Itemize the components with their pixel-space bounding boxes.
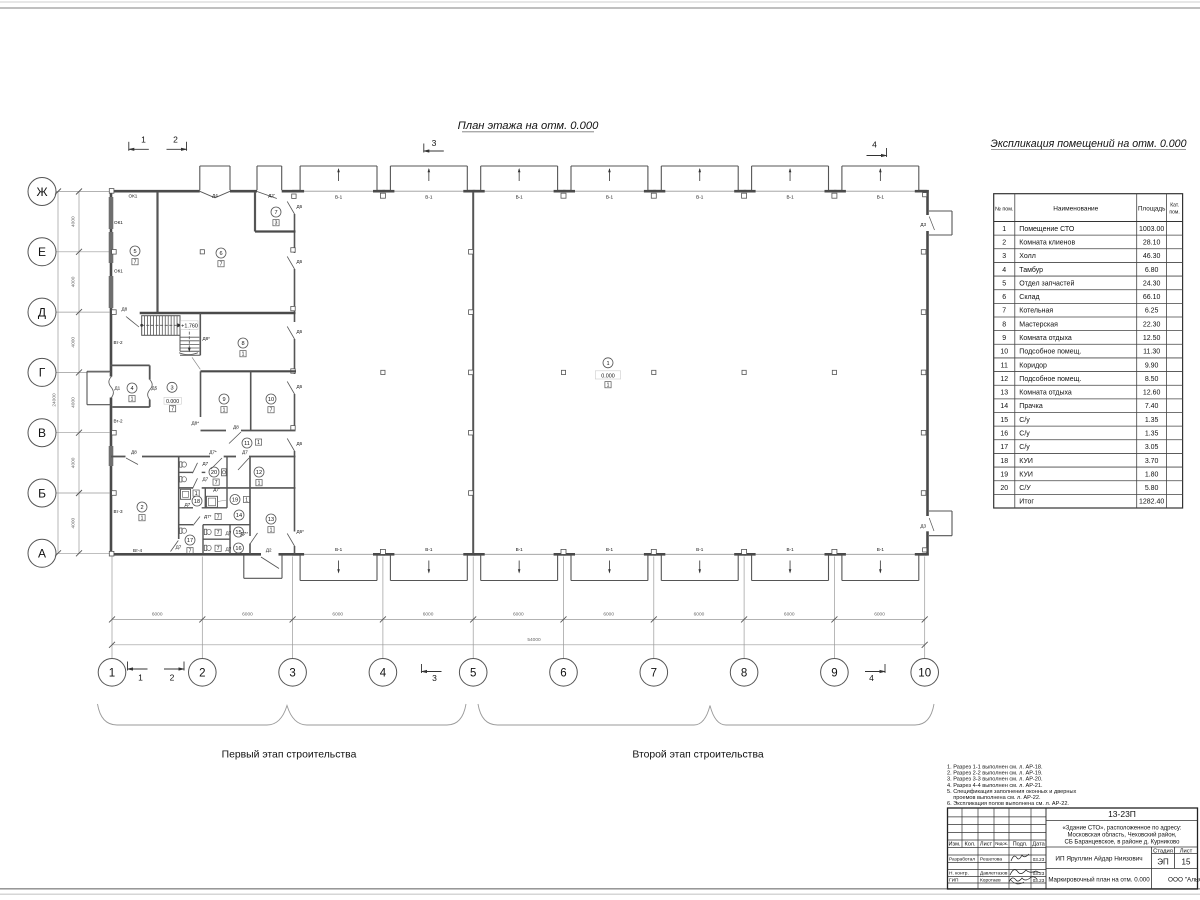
svg-text:6000: 6000: [603, 611, 614, 617]
svg-text:3: 3: [170, 385, 173, 391]
svg-text:Д: Д: [38, 305, 46, 319]
svg-text:24.30: 24.30: [1143, 280, 1161, 287]
svg-text:Котельная: Котельная: [1019, 308, 1053, 315]
svg-text:10: 10: [1000, 349, 1008, 356]
svg-text:С/у: С/у: [1019, 430, 1030, 437]
svg-text:2. Разрез 2-2 выполнен см. л.: 2. Разрез 2-2 выполнен см. л. АР-19.: [947, 771, 1043, 777]
svg-text:Д8*: Д8*: [203, 336, 211, 341]
svg-text:3: 3: [1002, 253, 1006, 260]
svg-text:В-1: В-1: [786, 195, 794, 200]
svg-text:7: 7: [274, 210, 277, 216]
svg-text:В-1: В-1: [606, 195, 614, 200]
svg-text:9.90: 9.90: [1145, 362, 1159, 369]
svg-text:В-1: В-1: [425, 195, 433, 200]
svg-text:1. Разрез 1-1 выполнен см. л.: 1. Разрез 1-1 выполнен см. л. АР-18.: [947, 765, 1043, 771]
svg-text:Экспликация помещений на отм.: Экспликация помещений на отм. 0.000: [991, 138, 1187, 150]
svg-text:Д6: Д6: [297, 441, 303, 446]
svg-text:7: 7: [171, 407, 174, 413]
svg-text:5: 5: [1002, 280, 1006, 287]
svg-text:3. Разрез 3-3 выполнен см. л.: 3. Разрез 3-3 выполнен см. л. АР-20.: [947, 777, 1043, 783]
svg-text:ЭП: ЭП: [1157, 858, 1169, 867]
svg-text:ООО "Альянс: ООО "Альянс: [1168, 877, 1200, 884]
svg-text:Д7*: Д7*: [209, 450, 217, 455]
svg-text:12.60: 12.60: [1143, 390, 1161, 397]
svg-text:15: 15: [1182, 858, 1191, 867]
svg-text:1: 1: [257, 440, 260, 446]
svg-text:6: 6: [560, 668, 566, 680]
svg-text:Подсобное помещ.: Подсобное помещ.: [1019, 348, 1081, 356]
svg-text:Московская область, Чеховский: Московская область, Чеховский район,: [1067, 832, 1176, 839]
svg-text:66.10: 66.10: [1143, 294, 1161, 301]
svg-text:7: 7: [189, 549, 192, 555]
svg-text:7: 7: [217, 514, 220, 520]
svg-text:Д8: Д8: [131, 450, 137, 455]
svg-text:Д7: Д7: [203, 461, 209, 466]
svg-text:20: 20: [211, 470, 217, 476]
svg-text:В-1: В-1: [516, 195, 524, 200]
svg-text:7: 7: [220, 262, 223, 268]
svg-text:1: 1: [607, 383, 610, 389]
svg-text:№док.: №док.: [995, 841, 1008, 846]
svg-text:ОК1: ОК1: [129, 194, 138, 199]
svg-text:9: 9: [831, 668, 837, 680]
svg-text:6000: 6000: [423, 611, 434, 617]
svg-text:Д6: Д6: [297, 384, 303, 389]
svg-text:7: 7: [215, 480, 218, 486]
svg-text:ГИП: ГИП: [949, 878, 959, 884]
svg-text:6000: 6000: [694, 611, 705, 617]
svg-text:№ пом.: № пом.: [995, 207, 1013, 213]
svg-text:7: 7: [217, 530, 220, 536]
svg-text:4: 4: [1002, 267, 1006, 274]
svg-text:Д6: Д6: [297, 259, 303, 264]
svg-text:В-1: В-1: [425, 547, 433, 552]
svg-text:18: 18: [194, 499, 200, 505]
svg-text:Изм.: Изм.: [949, 841, 961, 847]
svg-text:1: 1: [223, 408, 226, 414]
svg-text:6000: 6000: [874, 611, 885, 617]
svg-text:Е: Е: [38, 245, 46, 259]
svg-text:ОК1: ОК1: [114, 269, 123, 274]
svg-text:1: 1: [131, 397, 134, 403]
svg-text:Н. контр.: Н. контр.: [949, 871, 969, 877]
svg-text:Д7*: Д7*: [204, 514, 212, 519]
svg-text:Вт-3: Вт-3: [114, 509, 124, 514]
svg-text:1: 1: [109, 668, 115, 680]
svg-text:1: 1: [245, 497, 248, 503]
svg-text:С/У: С/У: [1019, 485, 1031, 492]
svg-text:Коротаев: Коротаев: [980, 878, 1001, 884]
svg-text:В-1: В-1: [516, 547, 524, 552]
svg-text:03.23: 03.23: [1033, 871, 1045, 876]
svg-text:Д7: Д7: [203, 476, 209, 481]
svg-text:7: 7: [134, 260, 137, 266]
svg-text:Д7: Д7: [242, 450, 248, 455]
svg-text:Маркировочный план на отм. 0.0: Маркировочный план на отм. 0.000: [1048, 877, 1150, 884]
svg-text:4: 4: [380, 668, 387, 680]
svg-text:7: 7: [270, 408, 273, 414]
svg-text:6.80: 6.80: [1145, 267, 1159, 274]
svg-text:12: 12: [256, 470, 262, 476]
svg-text:Второй этап строительства: Второй этап строительства: [632, 750, 763, 761]
svg-text:В-1: В-1: [606, 547, 614, 552]
svg-text:Д6: Д6: [297, 329, 303, 334]
svg-text:Д5: Д5: [152, 386, 158, 391]
svg-text:1.80: 1.80: [1145, 471, 1159, 478]
svg-text:3: 3: [432, 673, 437, 683]
svg-text:3.70: 3.70: [1145, 458, 1159, 465]
svg-text:1: 1: [1002, 226, 1006, 233]
svg-text:В-1: В-1: [786, 547, 794, 552]
svg-text:КУИ: КУИ: [1019, 471, 1033, 478]
svg-text:4. Разрез 4-4 выполнен см. л.: 4. Разрез 4-4 выполнен см. л. АР-21.: [947, 783, 1043, 789]
svg-text:Отдел запчастей: Отдел запчастей: [1019, 279, 1074, 287]
svg-text:4: 4: [872, 140, 877, 150]
svg-text:22.30: 22.30: [1143, 321, 1161, 328]
svg-text:18: 18: [1000, 458, 1008, 465]
svg-text:4: 4: [869, 673, 874, 683]
svg-text:7: 7: [1002, 308, 1006, 315]
svg-text:6: 6: [1002, 294, 1006, 301]
svg-text:17: 17: [187, 538, 193, 544]
svg-text:14: 14: [236, 513, 242, 519]
svg-text:Итог: Итог: [1019, 499, 1034, 506]
svg-text:7: 7: [651, 668, 657, 680]
svg-text:Мастерская: Мастерская: [1019, 321, 1058, 328]
svg-text:С/у: С/у: [1019, 444, 1030, 451]
svg-text:15: 15: [1000, 417, 1008, 424]
svg-text:2: 2: [173, 135, 178, 145]
svg-text:6000: 6000: [784, 611, 795, 617]
svg-text:Холл: Холл: [1019, 253, 1036, 260]
svg-text:Вт-4: Вт-4: [133, 548, 143, 553]
svg-text:Первый этап строительства: Первый этап строительства: [222, 750, 357, 761]
svg-text:10: 10: [268, 397, 274, 403]
svg-text:ОК1: ОК1: [114, 220, 123, 225]
svg-text:СБ Баранцевское, в районе д. К: СБ Баранцевское, в районе д. Курниково: [1064, 839, 1180, 846]
svg-text:19: 19: [232, 498, 238, 504]
svg-text:Д7: Д7: [226, 531, 232, 536]
svg-text:Комната отдыха: Комната отдыха: [1019, 335, 1072, 342]
svg-text:Наименование: Наименование: [1053, 206, 1098, 213]
svg-text:Комната отдыха: Комната отдыха: [1019, 390, 1072, 397]
svg-text:4000: 4000: [71, 397, 77, 408]
svg-text:Подсобное помещ.: Подсобное помещ.: [1019, 375, 1081, 383]
svg-text:Кат.: Кат.: [1170, 203, 1179, 209]
svg-text:Д7: Д7: [176, 545, 182, 550]
svg-text:16: 16: [235, 546, 241, 552]
svg-text:8.50: 8.50: [1145, 376, 1159, 383]
svg-text:Дата: Дата: [1032, 841, 1045, 847]
svg-text:пом.: пом.: [1169, 210, 1179, 216]
svg-text:Вт-2: Вт-2: [114, 419, 124, 424]
svg-text:Д2: Д2: [266, 548, 272, 553]
svg-text:3: 3: [275, 221, 278, 227]
svg-text:Ж: Ж: [36, 185, 47, 199]
svg-text:Лист: Лист: [980, 841, 993, 847]
svg-text:Склад: Склад: [1019, 294, 1039, 301]
svg-text:28.10: 28.10: [1143, 239, 1161, 246]
svg-text:Помещение СТО: Помещение СТО: [1019, 226, 1075, 233]
svg-text:12.50: 12.50: [1143, 335, 1161, 342]
svg-text:Д8: Д8: [233, 425, 239, 430]
svg-text:С/у: С/у: [1019, 417, 1030, 424]
svg-text:Д3: Д3: [920, 222, 926, 227]
svg-text:4000: 4000: [71, 457, 77, 468]
svg-text:2: 2: [199, 668, 205, 680]
svg-text:«Здание СТО», расположенное по: «Здание СТО», расположенное по адресу:: [1062, 826, 1181, 832]
svg-text:Подп.: Подп.: [1013, 841, 1028, 847]
svg-text:2: 2: [140, 505, 143, 511]
svg-text:Площадь: Площадь: [1138, 206, 1166, 213]
svg-text:Д2': Д2': [268, 193, 275, 198]
svg-text:11: 11: [244, 441, 250, 447]
svg-text:В-1: В-1: [696, 195, 704, 200]
svg-text:Вт-2: Вт-2: [114, 340, 124, 345]
svg-text:13-23П: 13-23П: [1108, 809, 1136, 819]
svg-text:24000: 24000: [52, 393, 58, 407]
svg-text:2: 2: [170, 673, 175, 683]
svg-text:Г: Г: [39, 366, 46, 380]
svg-text:10: 10: [918, 668, 931, 680]
svg-text:+1.760: +1.760: [181, 324, 198, 330]
svg-text:20: 20: [1000, 485, 1008, 492]
svg-text:1: 1: [606, 361, 609, 367]
svg-text:3: 3: [432, 138, 437, 148]
svg-text:1: 1: [138, 673, 143, 683]
svg-text:8: 8: [741, 668, 747, 680]
svg-text:5. Спецификация заполнения око: 5. Спецификация заполнения оконных и две…: [947, 789, 1076, 795]
svg-text:5: 5: [133, 249, 136, 255]
svg-text:В-1: В-1: [877, 195, 885, 200]
svg-text:2: 2: [1002, 239, 1006, 246]
svg-text:11.30: 11.30: [1143, 349, 1160, 356]
svg-text:4000: 4000: [71, 216, 77, 227]
svg-text:8: 8: [1002, 321, 1006, 328]
svg-text:В-1: В-1: [696, 547, 704, 552]
svg-text:13: 13: [268, 517, 274, 523]
svg-text:Д6: Д6: [297, 204, 303, 209]
svg-text:6000: 6000: [513, 611, 524, 617]
svg-text:В: В: [38, 426, 46, 440]
svg-text:Д8*: Д8*: [192, 421, 200, 426]
svg-text:Прачка: Прачка: [1019, 403, 1043, 410]
svg-text:6000: 6000: [332, 611, 343, 617]
svg-text:1282.40: 1282.40: [1139, 499, 1164, 506]
svg-text:5: 5: [470, 668, 476, 680]
svg-text:1: 1: [242, 352, 245, 358]
svg-text:Д4: Д4: [212, 193, 218, 198]
svg-text:Стадия: Стадия: [1153, 848, 1173, 854]
svg-text:16: 16: [1000, 430, 1008, 437]
svg-text:КУИ: КУИ: [1019, 458, 1033, 465]
svg-text:7.40: 7.40: [1145, 403, 1159, 410]
svg-text:Д8: Д8: [122, 307, 128, 312]
svg-text:Кол.: Кол.: [964, 841, 976, 847]
svg-text:9: 9: [222, 397, 225, 403]
svg-text:Лист: Лист: [1180, 848, 1193, 854]
svg-text:13: 13: [1000, 390, 1008, 397]
svg-text:6. Экспликация полов выполнена: 6. Экспликация полов выполнена см. л. АР…: [947, 801, 1069, 807]
svg-text:Тамбур: Тамбур: [1019, 266, 1043, 274]
svg-text:46.30: 46.30: [1143, 253, 1161, 260]
svg-text:В-1: В-1: [335, 195, 343, 200]
svg-text:Д7: Д7: [226, 547, 232, 552]
svg-text:54000: 54000: [527, 637, 541, 643]
svg-text:1.35: 1.35: [1145, 430, 1159, 437]
svg-text:Коридор: Коридор: [1019, 362, 1047, 369]
svg-text:6.25: 6.25: [1145, 308, 1159, 315]
svg-text:0.000: 0.000: [166, 399, 179, 405]
svg-text:03.23: 03.23: [1033, 857, 1045, 862]
svg-text:1: 1: [270, 528, 273, 534]
svg-text:1: 1: [141, 516, 144, 522]
svg-text:14: 14: [1000, 403, 1008, 410]
svg-text:6: 6: [219, 251, 222, 257]
svg-text:4000: 4000: [71, 337, 77, 348]
svg-text:1003.00: 1003.00: [1139, 226, 1164, 233]
svg-text:15: 15: [235, 530, 241, 536]
svg-text:В-1: В-1: [335, 547, 343, 552]
svg-text:Д3: Д3: [920, 524, 926, 529]
svg-text:03.23: 03.23: [1033, 878, 1045, 883]
svg-text:Д7: Д7: [185, 502, 191, 507]
svg-text:Д7*: Д7*: [241, 531, 249, 536]
svg-text:4000: 4000: [71, 517, 77, 528]
svg-text:Д1: Д1: [115, 386, 121, 391]
svg-text:0.000: 0.000: [601, 373, 615, 379]
svg-text:1: 1: [195, 491, 198, 497]
svg-text:Комната клиенов: Комната клиенов: [1019, 239, 1075, 246]
svg-text:Д7': Д7': [213, 487, 220, 492]
svg-text:4: 4: [130, 386, 133, 392]
svg-text:Разработал: Разработал: [949, 856, 975, 862]
svg-text:ИП Яруллин Айдар Ниязович: ИП Яруллин Айдар Ниязович: [1055, 855, 1142, 863]
svg-text:3: 3: [289, 668, 295, 680]
svg-text:Решетова: Решетова: [980, 856, 1002, 862]
svg-text:12: 12: [1000, 376, 1008, 383]
svg-text:3.05: 3.05: [1145, 444, 1159, 451]
svg-text:8: 8: [241, 341, 244, 347]
svg-text:1.35: 1.35: [1145, 417, 1159, 424]
svg-text:6000: 6000: [152, 611, 163, 617]
svg-text:Б: Б: [38, 486, 46, 500]
svg-text:Давлетгазов: Давлетгазов: [980, 871, 1008, 877]
svg-text:5.80: 5.80: [1145, 485, 1159, 492]
svg-text:В-1: В-1: [877, 547, 885, 552]
svg-text:7: 7: [217, 546, 220, 552]
svg-text:6000: 6000: [242, 611, 253, 617]
svg-text:11: 11: [1001, 362, 1008, 369]
svg-text:1: 1: [258, 481, 261, 487]
svg-text:17: 17: [1000, 444, 1008, 451]
svg-text:19: 19: [1000, 471, 1008, 478]
svg-text:План этажа на отм. 0.000: План этажа на отм. 0.000: [458, 120, 599, 132]
svg-text:4000: 4000: [71, 276, 77, 287]
svg-text:проемов выполнена см. л. АР-22: проемов выполнена см. л. АР-22.: [947, 795, 1041, 801]
svg-text:А: А: [38, 547, 46, 561]
svg-text:9: 9: [1002, 335, 1006, 342]
svg-text:1: 1: [141, 135, 146, 145]
svg-text:Д6*: Д6*: [297, 529, 305, 534]
